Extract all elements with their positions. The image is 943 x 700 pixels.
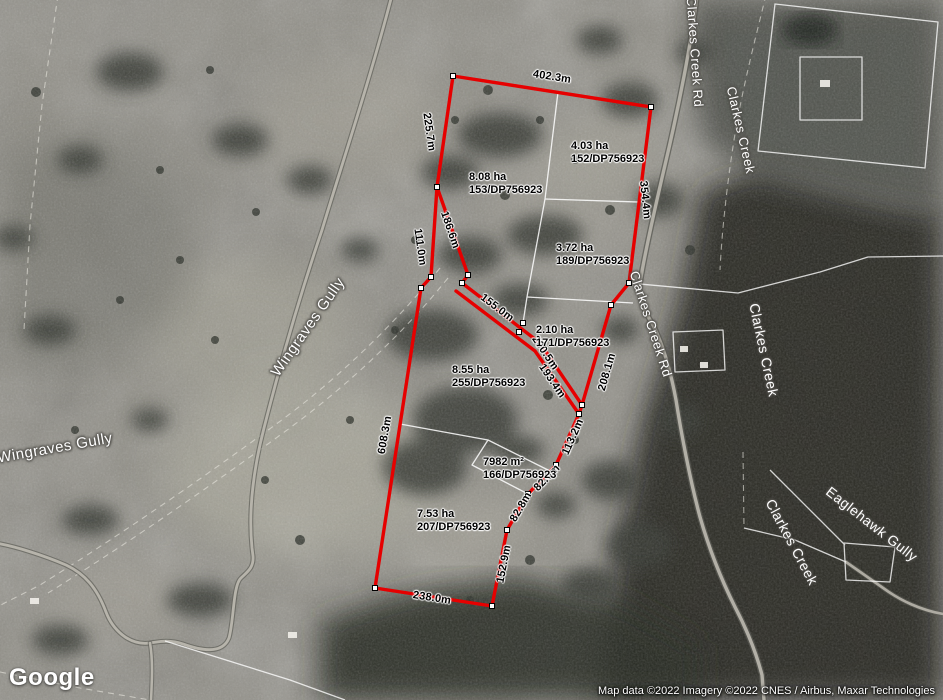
map-attribution: Map data ©2022 Imagery ©2022 CNES / Airb…	[598, 685, 935, 697]
map-canvas[interactable]: 402.3m 225.7m 354.4m 186.6m 111.0m 155.0…	[0, 0, 943, 700]
satellite-imagery	[0, 0, 943, 700]
google-logo[interactable]: Google	[9, 664, 95, 692]
